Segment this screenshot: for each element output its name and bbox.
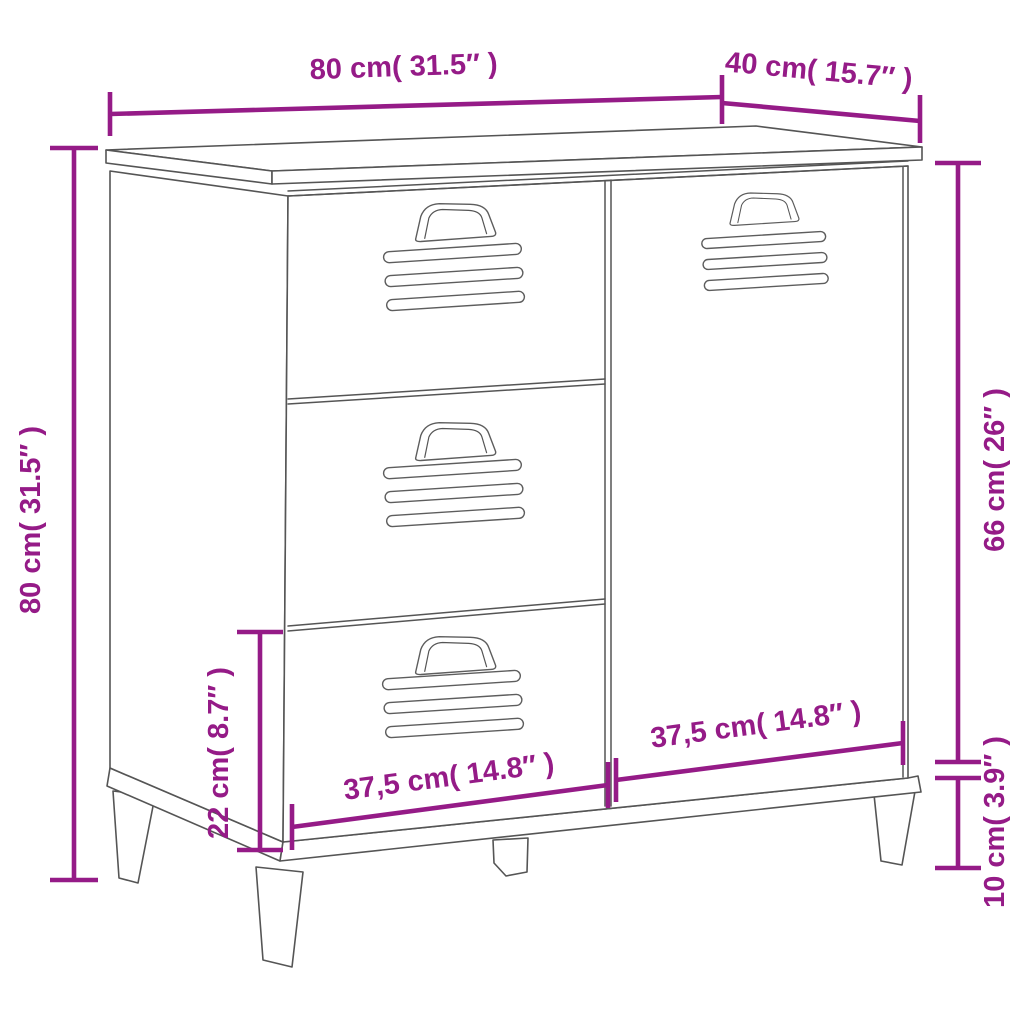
door-handle-icon [729, 191, 799, 225]
dimension-bottom-drawer-height-label: 22 cm( 8.7″ ) [203, 667, 235, 839]
door-vents-icon [702, 231, 829, 290]
drawer-top-handle-icon [414, 201, 496, 241]
dimension-top-width: 80 cm( 31.5″ ) [110, 48, 722, 136]
drawer-middle-handle-icon [414, 420, 496, 460]
dimension-right-leg-height-label: 10 cm( 3.9″ ) [979, 736, 1011, 908]
dimension-top-depth-label: 40 cm( 15.7″ ) [724, 46, 914, 95]
dimension-top-width-label: 80 cm( 31.5″ ) [309, 48, 498, 87]
leg-front-left [256, 867, 303, 967]
front-face [283, 166, 908, 842]
dimension-right-upper-height: 66 cm( 26″ ) [935, 163, 1011, 762]
dimension-left-height: 80 cm( 31.5″ ) [15, 148, 98, 880]
diagram-canvas: 80 cm( 31.5″ ) 40 cm( 15.7″ ) 80 cm( 31.… [0, 0, 1024, 1024]
drawer-bottom-vents-icon [382, 670, 524, 738]
drawer-top-vents-icon [383, 243, 525, 311]
drawer-bottom-handle-icon [414, 634, 496, 674]
furniture-dimension-diagram: 80 cm( 31.5″ ) 40 cm( 15.7″ ) 80 cm( 31.… [0, 0, 1024, 1024]
dimension-left-height-label: 80 cm( 31.5″ ) [15, 426, 47, 614]
leg-middle [493, 838, 528, 876]
dimension-right-upper-height-label: 66 cm( 26″ ) [979, 388, 1011, 552]
drawer-middle-vents-icon [383, 459, 525, 527]
cabinet-drawing [106, 126, 922, 967]
